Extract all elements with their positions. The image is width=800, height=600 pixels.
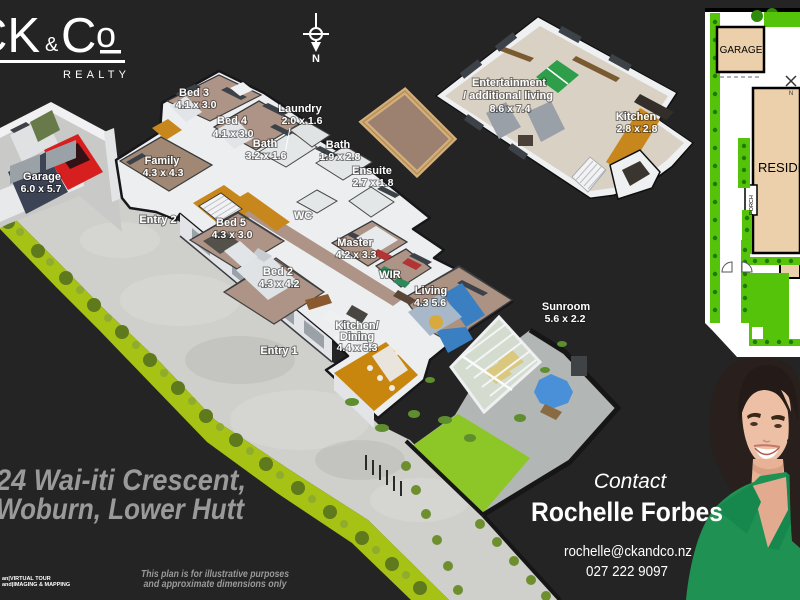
svg-text:rochelle@ckandco.nz: rochelle@ckandco.nz — [564, 543, 692, 560]
svg-text:and approximate dimensions onl: and approximate dimensions only — [144, 578, 288, 590]
svg-text:N: N — [312, 53, 320, 65]
svg-text:Bath: Bath — [253, 138, 278, 150]
svg-text:Rochelle Forbes: Rochelle Forbes — [531, 497, 723, 527]
svg-text:CK: CK — [0, 9, 40, 63]
svg-text:Entertainment: Entertainment — [472, 77, 546, 89]
svg-text:4.3 x 4.2: 4.3 x 4.2 — [259, 278, 300, 290]
svg-text:N: N — [789, 91, 793, 97]
svg-text:Contact: Contact — [594, 470, 668, 493]
svg-text:and|IMAGING & MAPPING: and|IMAGING & MAPPING — [2, 582, 70, 588]
svg-text:C: C — [61, 9, 96, 63]
svg-text:REALTY: REALTY — [63, 69, 130, 81]
svg-text:3.2 x 1.6: 3.2 x 1.6 — [246, 150, 287, 162]
svg-text:Living: Living — [415, 285, 447, 297]
svg-text:2.8 x 2.8: 2.8 x 2.8 — [617, 123, 658, 135]
svg-text:Sunroom: Sunroom — [542, 301, 590, 313]
svg-text:PORCH: PORCH — [749, 195, 755, 215]
svg-text:Ensuite: Ensuite — [352, 165, 392, 177]
svg-text:2.7 x 1.8: 2.7 x 1.8 — [353, 177, 394, 189]
svg-text:RESIDE: RESIDE — [758, 160, 800, 175]
svg-text:4.2 x 3.3: 4.2 x 3.3 — [336, 249, 377, 261]
svg-text:Kitchen: Kitchen — [616, 111, 657, 123]
svg-text:Entry 1: Entry 1 — [260, 345, 297, 357]
svg-text:5.6 x 2.2: 5.6 x 2.2 — [545, 313, 586, 325]
svg-text:6.0 x 5.7: 6.0 x 5.7 — [21, 183, 62, 195]
svg-text:/ additional living: / additional living — [463, 90, 553, 102]
svg-text:2.0 x 1.6: 2.0 x 1.6 — [282, 115, 323, 127]
svg-text:Bed 4: Bed 4 — [217, 115, 248, 127]
svg-text:4.3 x 3.0: 4.3 x 3.0 — [212, 229, 253, 241]
svg-text:Laundry: Laundry — [278, 103, 322, 115]
svg-text:WIR: WIR — [379, 269, 400, 281]
svg-text:4.3 5.6: 4.3 5.6 — [414, 297, 446, 309]
svg-text:WC: WC — [294, 210, 312, 222]
svg-text:Master: Master — [337, 237, 373, 249]
svg-text:Family: Family — [145, 155, 181, 167]
svg-text:Bed 3: Bed 3 — [179, 87, 209, 99]
svg-text:Bed 5: Bed 5 — [216, 217, 246, 229]
svg-text:4.1 x 3.0: 4.1 x 3.0 — [213, 128, 254, 140]
svg-text:4.4 x 5.3: 4.4 x 5.3 — [337, 342, 378, 354]
svg-text:4.1 x 3.0: 4.1 x 3.0 — [176, 99, 217, 111]
svg-text:Bath: Bath — [326, 139, 351, 151]
svg-text:Garage: Garage — [23, 171, 61, 183]
svg-text:&: & — [45, 34, 59, 56]
svg-text:o: o — [96, 14, 116, 55]
svg-text:GARAGE: GARAGE — [720, 45, 763, 56]
svg-text:4.3 x 4.3: 4.3 x 4.3 — [143, 167, 184, 179]
svg-text:Entry 2: Entry 2 — [139, 214, 176, 226]
svg-text:027 222 9097: 027 222 9097 — [586, 563, 668, 580]
svg-text:Bed 2: Bed 2 — [263, 266, 293, 278]
svg-text:1.9 x 2.8: 1.9 x 2.8 — [320, 151, 361, 163]
svg-text:Woburn, Lower Hutt: Woburn, Lower Hutt — [0, 493, 246, 526]
svg-text:8.6 x 7.4: 8.6 x 7.4 — [490, 103, 531, 115]
